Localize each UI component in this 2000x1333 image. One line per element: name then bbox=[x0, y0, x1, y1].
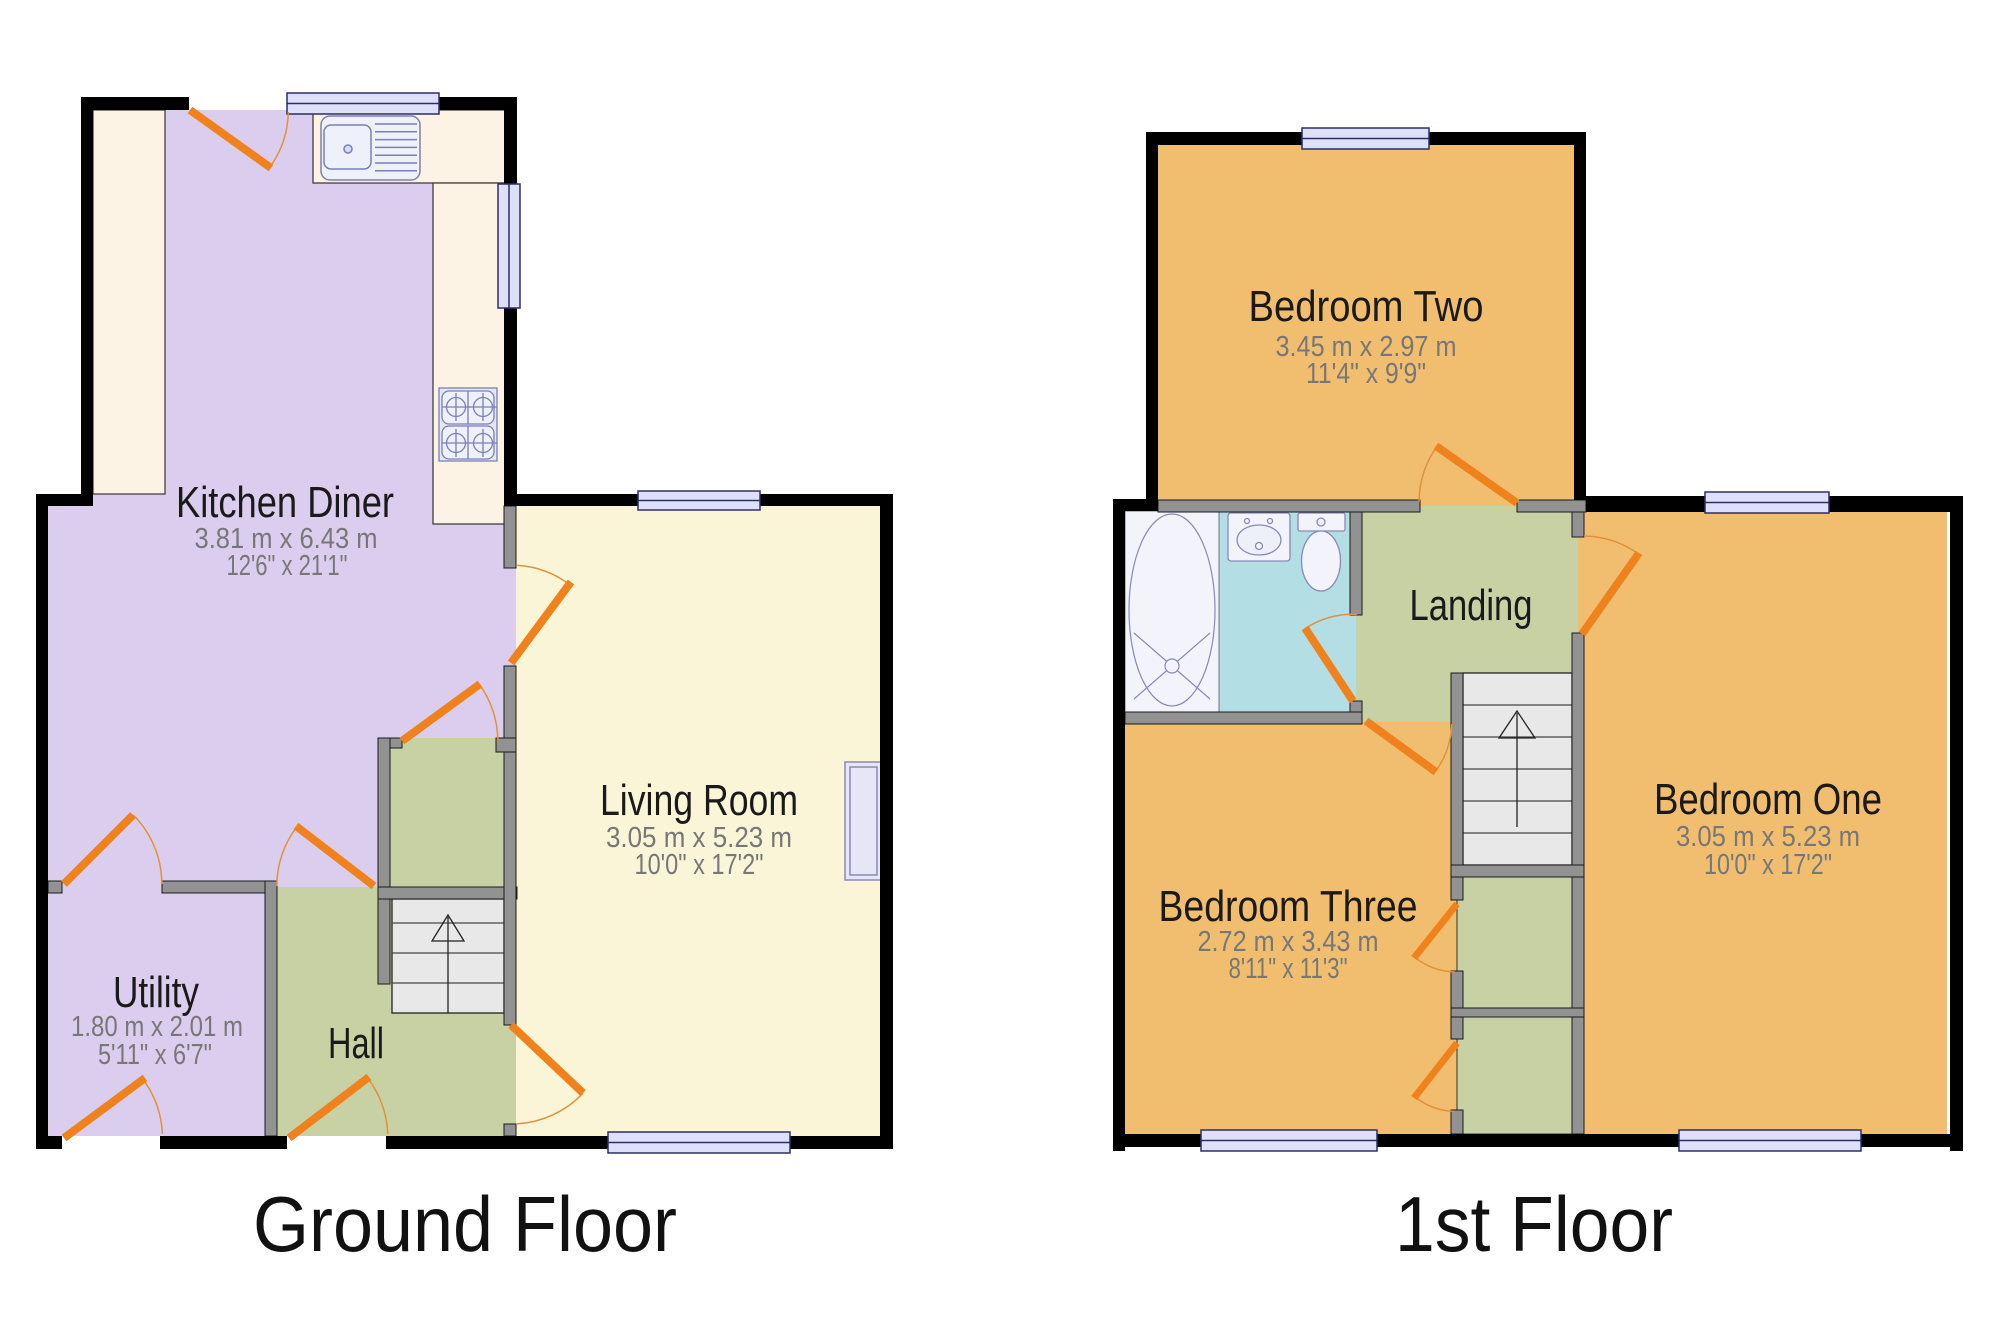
svg-text:10'0" x 17'2": 10'0" x 17'2" bbox=[635, 849, 764, 881]
svg-text:11'4" x 9'9": 11'4" x 9'9" bbox=[1306, 358, 1426, 390]
svg-text:Ground Floor: Ground Floor bbox=[253, 1180, 677, 1268]
svg-text:Living Room: Living Room bbox=[600, 776, 798, 825]
svg-text:12'6" x 21'1": 12'6" x 21'1" bbox=[227, 550, 348, 582]
svg-text:Hall: Hall bbox=[328, 1019, 384, 1068]
svg-text:Bedroom One: Bedroom One bbox=[1654, 775, 1882, 824]
svg-text:10'0" x 17'2": 10'0" x 17'2" bbox=[1704, 849, 1832, 881]
svg-text:8'11" x 11'3": 8'11" x 11'3" bbox=[1229, 953, 1348, 985]
svg-text:Kitchen Diner: Kitchen Diner bbox=[176, 478, 394, 527]
svg-text:Landing: Landing bbox=[1410, 581, 1533, 630]
svg-text:Utility: Utility bbox=[113, 968, 199, 1017]
svg-text:1st Floor: 1st Floor bbox=[1395, 1180, 1673, 1268]
svg-text:Bedroom Three: Bedroom Three bbox=[1159, 882, 1418, 931]
svg-text:5'11" x 6'7": 5'11" x 6'7" bbox=[98, 1039, 212, 1071]
svg-text:Bedroom Two: Bedroom Two bbox=[1249, 282, 1484, 331]
